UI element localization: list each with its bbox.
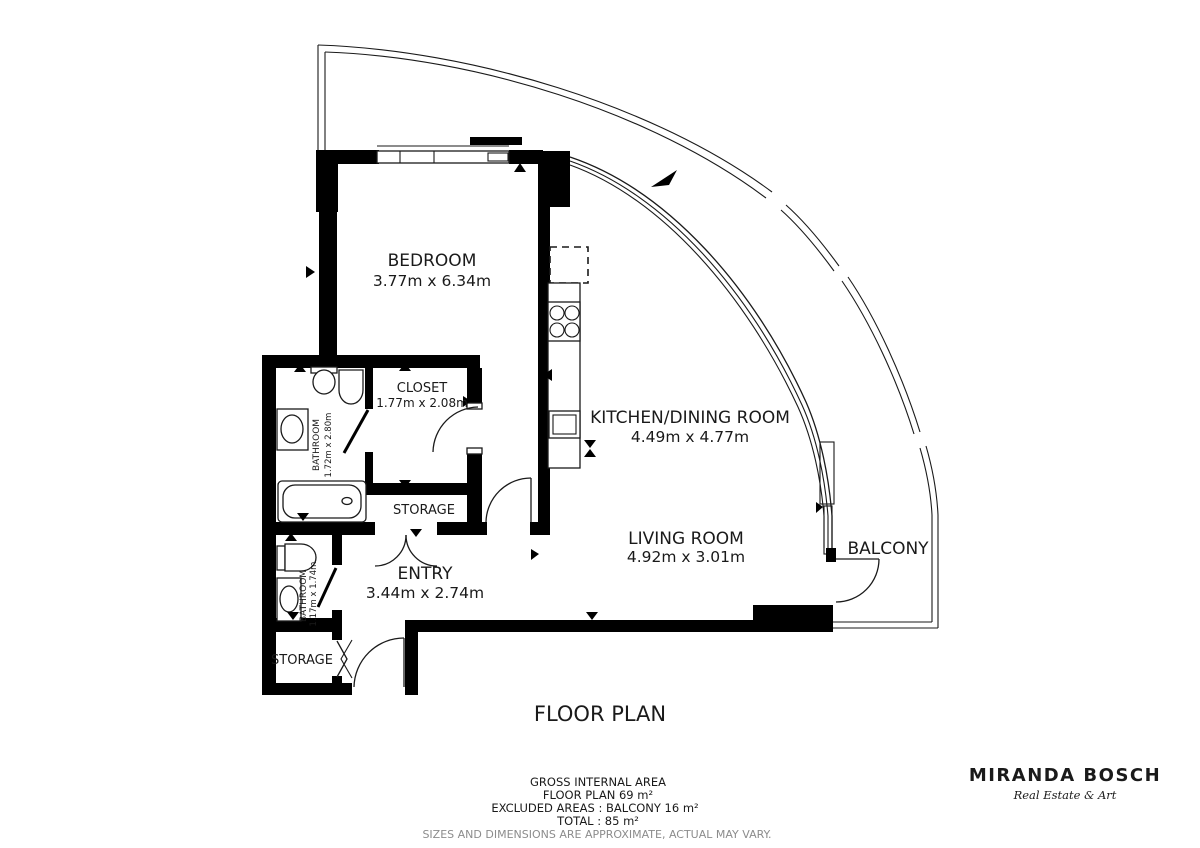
terrace-divider-bar xyxy=(470,137,522,145)
sink xyxy=(339,370,363,404)
facade-marker xyxy=(651,170,677,187)
doors xyxy=(318,403,879,687)
wall-segment xyxy=(826,548,836,562)
wall-segment xyxy=(530,522,550,535)
living-room-south-wall xyxy=(405,620,753,632)
storage2-label: STORAGE xyxy=(271,653,333,668)
disclaimer-text: SIZES AND DIMENSIONS ARE APPROXIMATE, AC… xyxy=(422,828,771,841)
bedroom-windows xyxy=(377,146,509,163)
plan-title: FLOOR PLAN xyxy=(534,702,666,726)
entry-label: ENTRY xyxy=(398,564,454,584)
wall-segment xyxy=(262,355,480,368)
wall-segment xyxy=(262,522,375,535)
arrow-marker xyxy=(306,266,315,278)
wall-segment xyxy=(332,535,342,565)
glass-facade xyxy=(570,157,834,554)
summary-excluded-areas: EXCLUDED AREAS : BALCONY 16 m² xyxy=(491,801,698,815)
railing-segment xyxy=(781,210,834,271)
railing-segment xyxy=(848,277,920,432)
summary-floor-plan-area: FLOOR PLAN 69 m² xyxy=(543,788,653,802)
arrow-marker xyxy=(584,449,596,457)
arrow-marker xyxy=(584,440,596,448)
door-jamb xyxy=(467,448,482,454)
bathroom1-dims: 1.72m x 2.80m xyxy=(324,413,334,478)
entry-dims: 3.44m x 2.74m xyxy=(366,584,484,602)
closet-label: CLOSET xyxy=(397,381,448,396)
wall-segment xyxy=(319,150,379,164)
living-room-label: LIVING ROOM xyxy=(628,529,744,549)
wall-segment xyxy=(365,368,373,409)
corridor-door-arc xyxy=(486,478,531,522)
bedroom-label: BEDROOM xyxy=(388,251,477,271)
kitchen-label: KITCHEN/DINING ROOM xyxy=(590,408,790,428)
arrow-marker xyxy=(514,163,526,172)
terrace-right-curve-inner xyxy=(920,448,932,622)
living-room-dims: 4.92m x 3.01m xyxy=(627,548,745,566)
wall-segment xyxy=(509,150,543,164)
wash-basin xyxy=(280,586,298,612)
facade-line xyxy=(570,157,832,548)
arrow-marker xyxy=(410,529,422,537)
storage1-double-door-arc xyxy=(375,535,406,566)
storage1-label: STORAGE xyxy=(393,503,455,518)
balcony-label: BALCONY xyxy=(847,539,929,559)
arrow-marker xyxy=(586,612,598,620)
bathroom2-dims: 1.17m x 1.74m xyxy=(309,562,319,627)
kitchen-dims: 4.49m x 4.77m xyxy=(631,428,749,446)
railing-segment xyxy=(842,281,914,434)
refrigerator xyxy=(550,247,588,283)
floor-plan-page: BEDROOM 3.77m x 6.34m CLOSET 1.77m x 2.0… xyxy=(0,0,1200,848)
bathroom1-label: BATHROOM xyxy=(312,419,322,471)
closet-door-arc xyxy=(433,407,478,452)
toilet-cistern xyxy=(277,546,285,570)
entry-door-arc xyxy=(354,638,404,687)
wall-segment xyxy=(365,483,482,495)
facade-line xyxy=(570,165,824,548)
summary-total-area: TOTAL : 85 m² xyxy=(556,814,639,828)
facade-line xyxy=(570,161,828,548)
bathroom2-label: BATHROOM xyxy=(299,570,309,622)
closet-dims: 1.77m x 2.08m xyxy=(376,396,468,410)
wash-basin xyxy=(281,415,303,443)
wall-segment xyxy=(437,522,487,535)
wall-segment xyxy=(753,605,833,632)
wall-segment xyxy=(319,150,337,360)
floor-plan-drawing: BEDROOM 3.77m x 6.34m CLOSET 1.77m x 2.0… xyxy=(0,0,1200,848)
storage2-bifold-door xyxy=(337,641,347,677)
summary-heading: GROSS INTERNAL AREA xyxy=(530,775,666,789)
brand-logo-text: MIRANDA BOSCH xyxy=(969,765,1161,786)
wall-segment xyxy=(262,683,352,695)
bathroom1-door-leaf xyxy=(344,410,368,453)
balcony-door-arc xyxy=(836,559,879,602)
annotation-block: FLOOR PLAN GROSS INTERNAL AREA FLOOR PLA… xyxy=(422,702,1161,841)
storage1-double-door-arc xyxy=(406,535,437,566)
bedroom-dims: 3.77m x 6.34m xyxy=(373,272,491,290)
railing-segment xyxy=(786,205,839,266)
toilet xyxy=(313,370,335,394)
arrow-marker xyxy=(531,549,539,560)
kitchen-fixtures xyxy=(548,247,588,468)
brand-tagline: Real Estate & Art xyxy=(1013,788,1117,802)
bathroom2-door-leaf xyxy=(318,568,336,607)
bathtub-drain xyxy=(342,498,352,505)
